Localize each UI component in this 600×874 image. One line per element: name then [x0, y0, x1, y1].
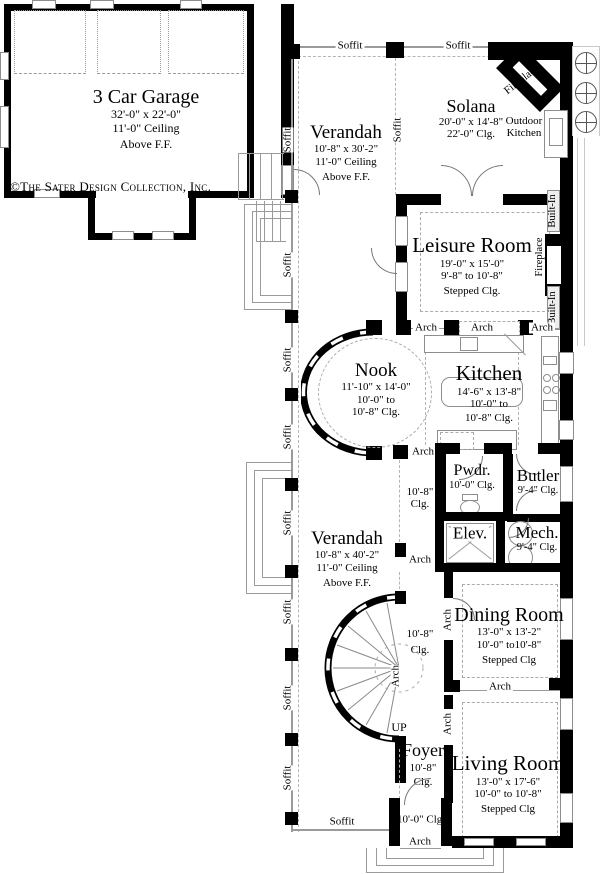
living-label: Living Room 13'-0" x 17'-6" 10'-0" to 10…: [452, 752, 565, 815]
enclosure-line: [584, 138, 585, 346]
soffit-label: Soffit: [283, 425, 294, 450]
door-arc: [371, 248, 397, 274]
pwdr-left-wall: [435, 443, 446, 521]
garage-entry-bump: [88, 196, 196, 240]
window: [90, 0, 114, 9]
room-ceiling: 22'-0" Clg.: [439, 128, 503, 140]
window: [559, 420, 574, 440]
kitchen-label: Kitchen 14'-6" x 13'-8" 10'-0" to 10'-8"…: [456, 362, 522, 424]
soffit-label: Soffit: [283, 128, 294, 153]
room-ceiling: 9'-4" Clg.: [516, 542, 559, 554]
verandah-bottom-line: [292, 829, 392, 831]
entry-ceiling-label: 10'-0" Clg.: [397, 815, 445, 826]
soffit-dash: [298, 46, 299, 832]
foyer-left-wall: [395, 749, 406, 783]
butler-top-wall: [538, 443, 570, 454]
dining-left-wall: [444, 572, 453, 598]
pillar: [366, 446, 382, 460]
window: [560, 698, 573, 730]
enclosure-line: [577, 138, 578, 346]
enclosure-line: [572, 46, 573, 136]
soffit-label: Soffit: [393, 118, 404, 143]
exterior-stairs: [238, 153, 284, 200]
fireplace-label: Fireplace: [535, 237, 546, 276]
window: [112, 231, 134, 240]
pillar: [285, 812, 298, 825]
pillar: [285, 648, 298, 661]
pwdr-butler-divider: [503, 454, 513, 516]
room-name: Butler: [517, 466, 560, 485]
room-note: Stepped Clg: [452, 803, 565, 815]
outdoor-kitchen-sink: [549, 118, 563, 146]
room-dim: 14'-6" x 13'-8": [456, 386, 522, 398]
room-dim: 10'-8" x 30'-2": [310, 143, 382, 155]
soffit-label: Soffit: [444, 41, 473, 52]
room-note: Above F.F.: [311, 577, 383, 589]
pillar: [444, 320, 459, 335]
elev-left-wall: [435, 519, 444, 569]
pillar: [395, 543, 406, 557]
cooktop-burner: [543, 386, 551, 394]
room-note: Above F.F.: [310, 171, 382, 183]
cooktop-burner: [552, 374, 560, 382]
french-door-arc: [472, 165, 503, 196]
toilet-tank: [462, 494, 478, 501]
arch-label: Arch: [529, 323, 555, 334]
kitchen-dash: [425, 337, 426, 445]
garage-door-track: [168, 10, 244, 74]
kitchen-sink: [460, 337, 478, 351]
column-symbol: [575, 111, 597, 133]
room-name: Living Room: [452, 752, 565, 776]
gallery-dash: [399, 460, 400, 542]
ceiling-word: Clg.: [407, 498, 434, 510]
window: [180, 0, 202, 9]
ceiling-height: 10'-8": [407, 628, 434, 640]
soffit-label: Soffit: [328, 817, 357, 828]
leisure-left-wall: [396, 194, 407, 326]
dining-label: Dining Room 13'-0" x 13'-2" 10'-0" to10'…: [454, 604, 563, 666]
room-dim: 11'-10" x 14'-0": [341, 381, 410, 393]
garage-door-track: [97, 10, 161, 74]
room-dim: 19'-0" x 15'-0": [412, 258, 532, 270]
arch-label: Arch: [469, 323, 495, 334]
arch-label: Arch: [487, 682, 513, 693]
window: [464, 838, 494, 846]
room-ceiling: 10'-8" Clg.: [341, 406, 410, 418]
cooktop-burner: [543, 374, 551, 382]
soffit-label: Soffit: [283, 348, 294, 373]
enclosure-line: [572, 46, 600, 47]
arch-label: Arch: [407, 837, 433, 848]
outdoor-kitchen-line1: Outdoor: [506, 115, 543, 127]
soffit-label: Soffit: [283, 600, 294, 625]
room-dim: 32'-0" x 22'-0": [93, 108, 200, 121]
room-name: Leisure Room: [412, 234, 532, 258]
dining-left-wall: [444, 640, 453, 682]
hall-upper-label: 10'-8" Clg.: [407, 486, 434, 511]
elev-label: Elev.: [451, 525, 489, 542]
room-name: Mech.: [516, 523, 559, 542]
mech-label: Mech. 9'-4" Clg.: [516, 523, 559, 554]
window: [0, 52, 9, 80]
soffit-label: Soffit: [283, 511, 294, 536]
elev-right-wall: [496, 519, 505, 569]
room-name: Pwdr.: [449, 462, 495, 480]
verandah-bottom-label: Verandah 10'-8" x 40'-2" 11'-0" Ceiling …: [311, 528, 383, 589]
ceiling-height: 10'-8": [402, 762, 444, 774]
room-range: 10'-0" to: [341, 394, 410, 406]
cooktop-burner: [552, 386, 560, 394]
room-ceiling: 10'-8" Clg.: [456, 412, 522, 424]
room-name: Verandah: [311, 528, 383, 549]
room-ceiling: 9'-4" Clg.: [517, 485, 560, 497]
verandah-top-label: Verandah 10'-8" x 30'-2" 11'-0" Ceiling …: [310, 122, 382, 183]
soffit-label: Soffit: [283, 253, 294, 278]
pillar: [285, 44, 300, 59]
room-name: 3 Car Garage: [93, 86, 200, 108]
up-label: UP: [390, 721, 407, 733]
pwdr-label: Pwdr. 10'-0" Clg.: [449, 462, 495, 492]
pillar: [393, 445, 408, 459]
room-name: Verandah: [310, 122, 382, 143]
arch-label: Arch: [410, 447, 436, 458]
room-note: Stepped Clg: [454, 654, 563, 666]
room-dim: 10'-8" x 40'-2": [311, 549, 383, 561]
leisure-firebox: [547, 246, 561, 284]
room-range: 10'-0" to10'-8": [454, 639, 563, 651]
copyright: ©The Sater Design Collection, Inc.: [10, 179, 211, 195]
window: [516, 838, 546, 846]
window: [0, 106, 9, 148]
leisure-label: Leisure Room 19'-0" x 15'-0" 9'-8" to 10…: [412, 234, 532, 297]
floor-plan: 3 Car Garage 32'-0" x 22'-0" 11'-0" Ceil…: [0, 0, 600, 874]
soffit-label: Soffit: [336, 41, 365, 52]
pillar: [285, 388, 298, 401]
pillar: [285, 565, 298, 578]
pillar: [285, 478, 298, 491]
room-dim: 13'-0" x 13'-2": [454, 626, 563, 638]
room-dim: 13'-0" x 17'-6": [452, 776, 565, 788]
room-range: 10'-0" to 10'-8": [452, 788, 565, 800]
arch-label: Arch: [391, 665, 402, 687]
living-left-wall: [444, 695, 453, 709]
pillar: [386, 42, 404, 58]
room-ceiling: 11'-0" Ceiling: [93, 122, 200, 135]
entry-steps: [366, 848, 504, 874]
window: [152, 231, 174, 240]
kitchen-appliance: [543, 400, 557, 411]
room-range: 9'-8" to 10'-8": [412, 270, 532, 282]
outdoor-kitchen-line2: Kitchen: [506, 127, 543, 139]
arch-label: Arch: [443, 713, 454, 735]
window: [560, 466, 573, 502]
pwdr-top-wall: [484, 443, 512, 454]
nook-label: Nook 11'-10" x 14'-0" 10'-0" to 10'-8" C…: [341, 360, 410, 418]
pillar: [366, 320, 382, 335]
window: [32, 0, 56, 9]
pillar: [395, 591, 406, 604]
room-range: 10'-0" to: [456, 398, 522, 410]
solana-label: Solana 20'-0" x 14'-8" 22'-0" Clg.: [439, 96, 503, 141]
room-name: Solana: [439, 96, 503, 116]
room-name: Foyer: [402, 740, 444, 760]
kitchen-appliance: [543, 356, 557, 365]
window: [559, 352, 574, 374]
ceiling-word: Clg.: [407, 644, 434, 656]
mech-bottom-wall: [435, 563, 570, 572]
gallery-dash: [399, 749, 400, 799]
ceiling-height: 10'-8": [407, 486, 434, 498]
hall-lower-label: 10'-8" Clg.: [407, 628, 434, 657]
built-in-label: Built-In: [548, 194, 559, 227]
column-symbol: [575, 52, 597, 74]
room-note: Stepped Clg.: [412, 285, 532, 297]
arch-label: Arch: [407, 555, 433, 566]
pillar: [285, 733, 298, 746]
garage-door-track: [14, 10, 86, 74]
room-note: Above F.F.: [93, 138, 200, 151]
room-ceiling: 11'-0" Ceiling: [310, 156, 382, 168]
butler-label: Butler 9'-4" Clg.: [517, 466, 560, 497]
leisure-top-wall: [404, 194, 441, 205]
outdoor-kitchen-label: Outdoor Kitchen: [506, 115, 543, 140]
soffit-label: Soffit: [283, 766, 294, 791]
room-ceiling: 11'-0" Ceiling: [311, 562, 383, 574]
pwdr-top-wall: [446, 443, 460, 454]
soffit-label: Soffit: [283, 686, 294, 711]
column-symbol: [575, 82, 597, 104]
room-name: Nook: [341, 360, 410, 381]
pillar: [444, 680, 460, 692]
window: [395, 216, 408, 246]
arch-label: Arch: [443, 609, 454, 631]
garage-label: 3 Car Garage 32'-0" x 22'-0" 11'-0" Ceil…: [93, 86, 200, 152]
room-dim: 20'-0" x 14'-8": [439, 116, 503, 128]
room-name: Dining Room: [454, 604, 563, 626]
built-in-label: Built-In: [548, 291, 559, 324]
pillar: [285, 310, 298, 323]
french-door-arc: [441, 165, 472, 196]
room-name: Kitchen: [456, 362, 522, 386]
room-ceiling: 10'-0" Clg.: [449, 480, 495, 492]
